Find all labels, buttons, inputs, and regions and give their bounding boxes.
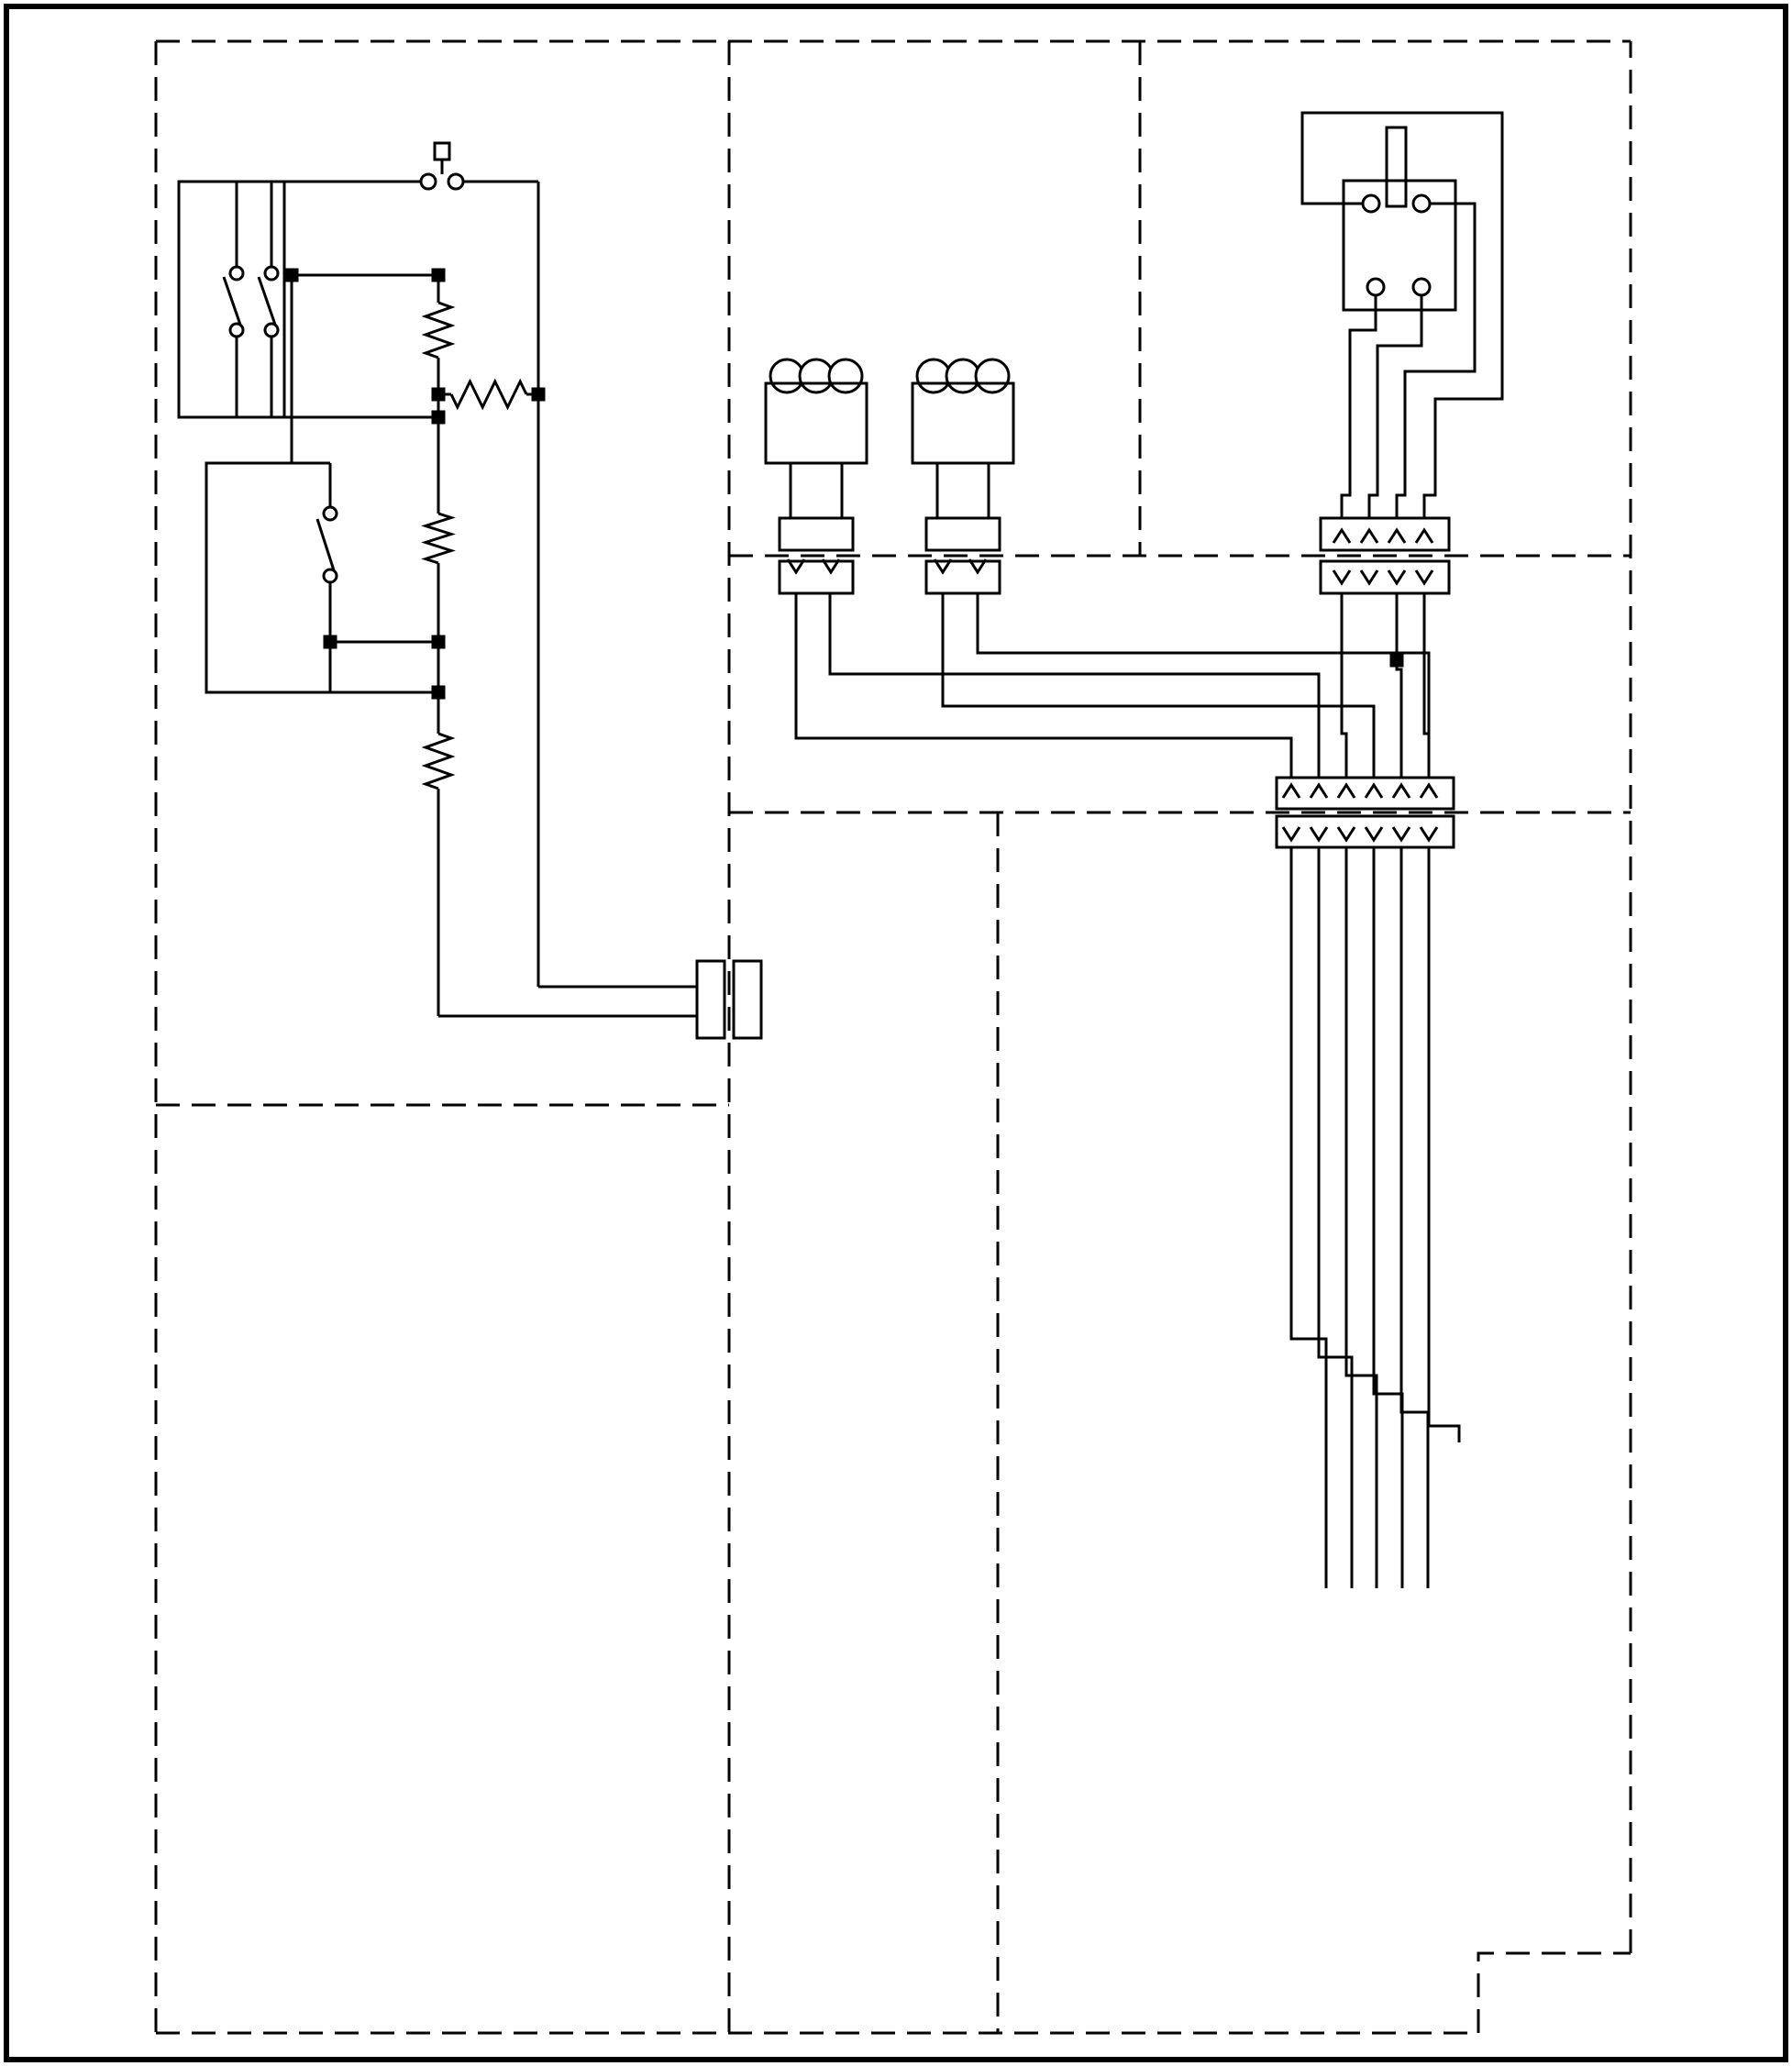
wire (1311, 827, 1327, 840)
outline (926, 518, 1000, 550)
wire (1374, 847, 1402, 1588)
components (179, 127, 1455, 789)
harness-boundaries (156, 41, 1631, 2033)
wire (1393, 827, 1410, 840)
junction-dot (532, 388, 545, 401)
terminal (324, 507, 337, 520)
junction-dot (432, 686, 445, 699)
outline (435, 143, 449, 160)
outline (791, 463, 842, 518)
wire (317, 519, 334, 570)
wire (1429, 847, 1459, 1442)
resistor-zigzag (451, 381, 526, 407)
outline (1344, 181, 1455, 310)
resistor-zigzag (426, 514, 451, 563)
outline (913, 383, 1013, 463)
outline (1321, 561, 1449, 593)
wire (1401, 847, 1428, 1588)
wire (1388, 530, 1405, 543)
outline (1277, 816, 1454, 847)
wire (1416, 530, 1432, 543)
wire (1421, 827, 1437, 840)
wire (943, 593, 1374, 778)
wire (1421, 785, 1437, 798)
junction-dot (285, 269, 298, 282)
wire (1397, 660, 1401, 778)
terminal (265, 267, 278, 280)
outline (780, 518, 853, 550)
wire (1369, 295, 1421, 518)
wire (1342, 593, 1346, 778)
junction-dot (432, 269, 445, 282)
terminal (265, 324, 278, 337)
outline (1387, 127, 1406, 206)
wire (1393, 785, 1410, 798)
wire (1366, 827, 1382, 840)
wire (206, 463, 438, 692)
terminal (829, 359, 862, 392)
junction-dot (432, 411, 445, 424)
wire (1338, 785, 1355, 798)
wire (1388, 570, 1405, 583)
terminal (1413, 195, 1430, 212)
terminal (230, 324, 243, 337)
junction-dot (432, 635, 445, 648)
wiring-diagram-canvas (0, 0, 1792, 2066)
wire (224, 277, 240, 325)
connectors (697, 518, 1454, 1038)
outline (766, 383, 867, 463)
terminal (230, 267, 243, 280)
outline (734, 961, 761, 1038)
wire (796, 593, 1291, 778)
wires (206, 113, 1502, 1588)
terminal (1367, 279, 1384, 295)
wire (1302, 113, 1502, 518)
terminal (448, 174, 463, 189)
wire (1416, 570, 1432, 583)
junction-dot (324, 635, 337, 648)
wire (1342, 295, 1376, 518)
outline (697, 961, 725, 1038)
schematic-page (0, 0, 1792, 2066)
wire (1283, 785, 1300, 798)
resistor-zigzag (426, 734, 451, 789)
wire (1283, 827, 1300, 840)
terminal (421, 174, 436, 189)
wire (1311, 785, 1327, 798)
wire (1338, 827, 1355, 840)
outline (1277, 778, 1454, 809)
wire (1333, 530, 1350, 543)
terminal (324, 569, 337, 582)
drawing-border (6, 6, 1786, 2060)
wire (1291, 847, 1326, 1588)
wire (978, 593, 1429, 778)
wire (830, 593, 1319, 778)
wire (1366, 785, 1382, 798)
terminal (1363, 195, 1379, 212)
terminal (976, 359, 1009, 392)
wire (259, 277, 275, 325)
terminal (1413, 279, 1430, 295)
resistor-zigzag (426, 303, 451, 358)
junction-dot (432, 388, 445, 401)
wire (1361, 570, 1377, 583)
harness-boundary-dashed (1478, 1953, 1631, 2033)
outline (937, 463, 989, 518)
wire (1333, 570, 1350, 583)
wire (1361, 530, 1377, 543)
